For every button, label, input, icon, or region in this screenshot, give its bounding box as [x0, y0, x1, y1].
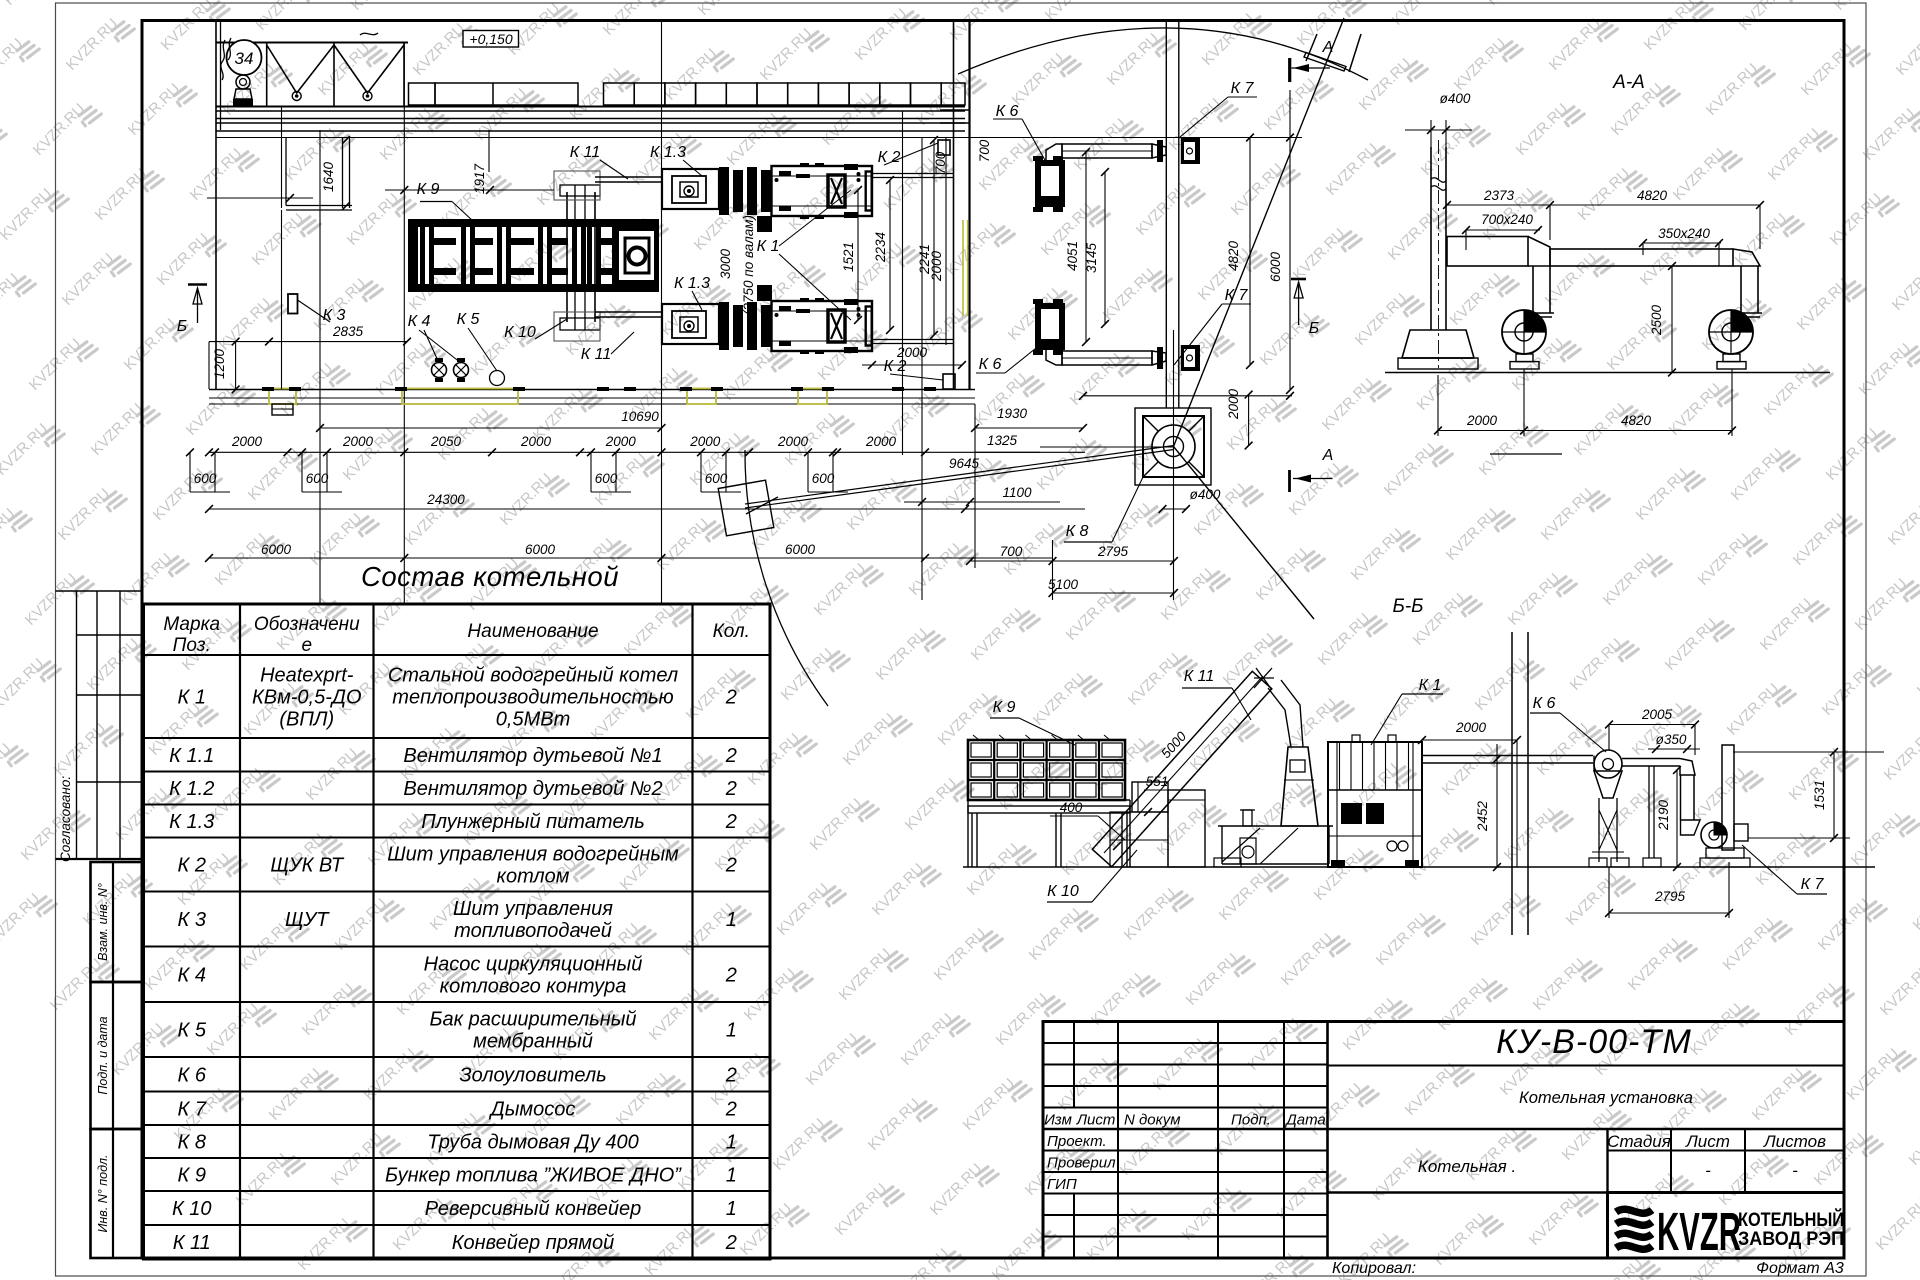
svg-text:Инв. N° подл.: Инв. N° подл.	[96, 1154, 110, 1232]
svg-text:К 3: К 3	[178, 909, 206, 931]
svg-text:А: А	[1322, 447, 1334, 464]
svg-text:Плунжерный питатель: Плунжерный питатель	[421, 811, 645, 833]
svg-text:Бак расширительный: Бак расширительный	[429, 1009, 636, 1031]
svg-text:34: 34	[235, 49, 254, 68]
svg-text:теплопроизводительностью: теплопроизводительностью	[392, 687, 673, 709]
svg-text:2: 2	[725, 811, 737, 833]
svg-text:топливоподачей: топливоподачей	[454, 920, 612, 942]
svg-text:24300: 24300	[426, 492, 465, 507]
svg-text:350х240: 350х240	[1658, 226, 1710, 241]
svg-text:1930: 1930	[997, 406, 1028, 421]
svg-text:Лист: Лист	[1685, 1132, 1730, 1151]
svg-text:Формат А3: Формат А3	[1756, 1260, 1844, 1277]
svg-text:2000: 2000	[231, 434, 263, 449]
svg-text:К 7: К 7	[1231, 80, 1255, 97]
svg-text:2: 2	[725, 964, 737, 986]
svg-text:К 1: К 1	[178, 687, 206, 709]
svg-text:К 4: К 4	[178, 964, 206, 986]
svg-text:N докум: N докум	[1124, 1112, 1181, 1129]
svg-text:Подп.: Подп.	[1231, 1112, 1271, 1129]
svg-text:2000: 2000	[865, 434, 897, 449]
svg-text:Марка: Марка	[163, 614, 220, 635]
svg-text:К 1.3: К 1.3	[650, 144, 686, 161]
svg-text:Насос циркуляционный: Насос циркуляционный	[424, 953, 643, 975]
svg-text:Реверсивный конвейер: Реверсивный конвейер	[425, 1198, 642, 1220]
svg-text:1: 1	[726, 1020, 737, 1042]
svg-text:К 8: К 8	[1066, 523, 1089, 540]
svg-text:1: 1	[726, 1132, 737, 1154]
svg-text:4820: 4820	[1637, 188, 1668, 203]
svg-text:Стальной водогрейный котел: Стальной водогрейный котел	[388, 665, 678, 687]
svg-text:Дымосос: Дымосос	[489, 1098, 576, 1120]
svg-text:Кол.: Кол.	[713, 621, 750, 642]
svg-text:2373: 2373	[1483, 188, 1515, 203]
svg-text:Б: Б	[1309, 320, 1319, 337]
svg-text:Вентилятор дутьевой №2: Вентилятор дутьевой №2	[403, 778, 662, 800]
svg-text:1325: 1325	[987, 433, 1018, 448]
svg-text:КУ-В-00-ТМ: КУ-В-00-ТМ	[1496, 1023, 1692, 1061]
svg-text:Котельная .: Котельная .	[1418, 1157, 1516, 1176]
svg-text:К 1.3: К 1.3	[169, 811, 214, 833]
svg-text:Б: Б	[177, 318, 187, 335]
svg-text:ø350: ø350	[1656, 732, 1687, 747]
svg-text:1: 1	[726, 1165, 737, 1187]
svg-text:4820: 4820	[1226, 240, 1241, 271]
svg-text:+0,150: +0,150	[469, 31, 512, 47]
svg-text:2234: 2234	[873, 232, 888, 263]
svg-text:1640: 1640	[321, 161, 336, 192]
svg-text:ГИП: ГИП	[1047, 1176, 1077, 1193]
svg-text:2: 2	[725, 778, 737, 800]
svg-text:ЩУК ВТ: ЩУК ВТ	[270, 855, 345, 877]
svg-text:-: -	[1792, 1161, 1798, 1180]
svg-text:А-А: А-А	[1612, 72, 1645, 93]
svg-text:1: 1	[726, 1198, 737, 1220]
svg-text:-: -	[1705, 1161, 1711, 1180]
svg-text:600: 600	[595, 471, 618, 486]
svg-text:Б-Б: Б-Б	[1392, 596, 1423, 617]
svg-text:К 5: К 5	[178, 1020, 207, 1042]
svg-text:Листов: Листов	[1763, 1132, 1826, 1151]
svg-text:2452: 2452	[1475, 800, 1490, 832]
svg-text:2000: 2000	[1455, 720, 1487, 735]
svg-text:К 1: К 1	[1419, 677, 1442, 694]
svg-text:К 3: К 3	[323, 307, 346, 324]
svg-text:3000: 3000	[718, 248, 733, 279]
svg-text:2: 2	[725, 855, 737, 877]
svg-text:КВм-0,5-ДО: КВм-0,5-ДО	[252, 687, 362, 709]
svg-text:Дата: Дата	[1284, 1112, 1326, 1129]
svg-text:Шит управления водогрейным: Шит управления водогрейным	[387, 844, 679, 866]
svg-text:К 4: К 4	[408, 313, 431, 330]
svg-text:Шит управления: Шит управления	[453, 898, 613, 920]
svg-text:котлового контура: котлового контура	[440, 975, 627, 997]
svg-text:0,5МВт: 0,5МВт	[496, 709, 570, 731]
svg-text:Лист: Лист	[1076, 1112, 1116, 1129]
svg-text:2000: 2000	[605, 434, 637, 449]
svg-text:К 2: К 2	[178, 855, 206, 877]
svg-text:К 2: К 2	[884, 358, 907, 375]
svg-text:2050: 2050	[430, 434, 462, 449]
svg-text:400: 400	[1060, 800, 1083, 815]
svg-text:1200: 1200	[212, 348, 227, 379]
svg-text:KVZR: KVZR	[1657, 1202, 1741, 1262]
svg-text:К 11: К 11	[1184, 668, 1214, 685]
svg-text:Вентилятор дутьевой №1: Вентилятор дутьевой №1	[403, 745, 662, 767]
svg-text:К 11: К 11	[581, 346, 611, 363]
svg-text:Взам. инв. N°: Взам. инв. N°	[96, 883, 110, 961]
svg-text:2190: 2190	[1656, 799, 1671, 831]
svg-text:2000: 2000	[1466, 413, 1498, 428]
svg-text:Обозначени: Обозначени	[254, 614, 360, 635]
svg-text:600: 600	[812, 471, 835, 486]
svg-text:Труба дымовая Ду 400: Труба дымовая Ду 400	[427, 1132, 639, 1154]
svg-text:Проверил: Проверил	[1047, 1155, 1116, 1172]
svg-text:2: 2	[725, 745, 737, 767]
svg-text:Наименование: Наименование	[467, 621, 598, 642]
svg-text:6000: 6000	[525, 542, 556, 557]
svg-text:600: 600	[306, 471, 329, 486]
svg-text:2: 2	[725, 687, 737, 709]
svg-text:Поз.: Поз.	[173, 635, 211, 656]
svg-text:Золоуловитель: Золоуловитель	[459, 1064, 606, 1086]
svg-text:2835: 2835	[332, 324, 364, 339]
svg-text:А: А	[1322, 39, 1334, 56]
svg-text:ø400: ø400	[1440, 91, 1471, 106]
svg-text:ø400: ø400	[1190, 487, 1221, 502]
svg-text:ЩУТ: ЩУТ	[285, 909, 330, 931]
svg-text:2005: 2005	[1641, 707, 1673, 722]
svg-text:2000: 2000	[777, 434, 809, 449]
svg-text:1: 1	[726, 909, 737, 931]
svg-text:Котельная установка: Котельная установка	[1519, 1089, 1693, 1107]
svg-text:Состав котельной: Состав котельной	[361, 561, 619, 592]
svg-text:К 11: К 11	[173, 1232, 211, 1254]
svg-text:К 10: К 10	[172, 1198, 212, 1220]
svg-text:600: 600	[194, 471, 217, 486]
svg-text:551: 551	[1146, 774, 1169, 789]
svg-text:2000: 2000	[896, 345, 928, 360]
svg-text:К 10: К 10	[504, 324, 536, 341]
svg-text:2000: 2000	[520, 434, 552, 449]
svg-text:700: 700	[1000, 544, 1023, 559]
svg-text:2000: 2000	[689, 434, 721, 449]
svg-text:1100: 1100	[1002, 485, 1032, 500]
svg-text:К 11: К 11	[570, 144, 600, 161]
svg-text:2: 2	[725, 1098, 737, 1120]
svg-text:Согласовано:: Согласовано:	[58, 776, 73, 862]
svg-text:6000: 6000	[261, 542, 292, 557]
svg-text:е: е	[301, 635, 312, 656]
svg-text:Конвейер прямой: Конвейер прямой	[452, 1232, 615, 1254]
svg-text:Копировал:: Копировал:	[1332, 1260, 1416, 1277]
svg-text:2: 2	[725, 1232, 737, 1254]
svg-text:Подп. и дата: Подп. и дата	[96, 1016, 110, 1094]
svg-text:10690: 10690	[621, 409, 659, 424]
svg-text:2000: 2000	[1226, 388, 1241, 420]
svg-text:К 1.3: К 1.3	[674, 275, 710, 292]
svg-text:К 1.1: К 1.1	[169, 745, 214, 767]
svg-text:2: 2	[725, 1064, 737, 1086]
svg-text:Изм: Изм	[1044, 1112, 1072, 1129]
svg-text:ЗАВОД РЭП: ЗАВОД РЭП	[1738, 1229, 1844, 1250]
svg-text:2795: 2795	[1654, 889, 1686, 904]
svg-text:600: 600	[705, 471, 728, 486]
svg-text:котлом: котлом	[497, 866, 570, 888]
svg-text:К 1.2: К 1.2	[169, 778, 214, 800]
svg-text:К 9: К 9	[993, 699, 1016, 716]
svg-text:Проект.: Проект.	[1047, 1133, 1107, 1150]
svg-text:6000: 6000	[785, 542, 816, 557]
svg-text:1917: 1917	[472, 163, 487, 194]
svg-text:1531: 1531	[1812, 780, 1827, 810]
svg-text:2795: 2795	[1097, 544, 1129, 559]
svg-text:КОТЕЛЬНЫЙ: КОТЕЛЬНЫЙ	[1738, 1209, 1844, 1231]
svg-text:2000: 2000	[929, 250, 944, 282]
svg-text:2500: 2500	[1649, 304, 1664, 336]
svg-text:Стадия: Стадия	[1607, 1132, 1671, 1151]
svg-text:К 6: К 6	[996, 103, 1019, 120]
svg-text:2000: 2000	[342, 434, 374, 449]
svg-text:К 7: К 7	[178, 1098, 207, 1120]
svg-text:(ВПЛ): (ВПЛ)	[279, 709, 334, 731]
svg-text:К 6: К 6	[1533, 695, 1556, 712]
svg-text:700: 700	[977, 139, 992, 162]
svg-text:6000: 6000	[1268, 251, 1283, 282]
svg-text:4051: 4051	[1065, 241, 1080, 271]
svg-text:К 10: К 10	[1047, 883, 1079, 900]
svg-text:700х240: 700х240	[1481, 212, 1533, 227]
svg-text:К 7: К 7	[1801, 876, 1825, 893]
svg-text:1521: 1521	[841, 242, 856, 272]
svg-text:К 6: К 6	[178, 1064, 207, 1086]
svg-text:К 1: К 1	[757, 238, 780, 255]
svg-text:мембранный: мембранный	[473, 1031, 593, 1053]
svg-text:К 9: К 9	[178, 1165, 206, 1187]
svg-text:(2750 по валам): (2750 по валам)	[741, 215, 756, 315]
svg-text:К 6: К 6	[979, 356, 1002, 373]
svg-text:4820: 4820	[1621, 413, 1652, 428]
svg-text:К 5: К 5	[457, 311, 480, 328]
svg-text:Бункер топлива ”ЖИВОЕ ДНО”: Бункер топлива ”ЖИВОЕ ДНО”	[385, 1165, 682, 1187]
svg-text:К 8: К 8	[178, 1132, 206, 1154]
svg-text:3145: 3145	[1084, 242, 1099, 273]
svg-text:Heatexprt-: Heatexprt-	[260, 665, 354, 687]
